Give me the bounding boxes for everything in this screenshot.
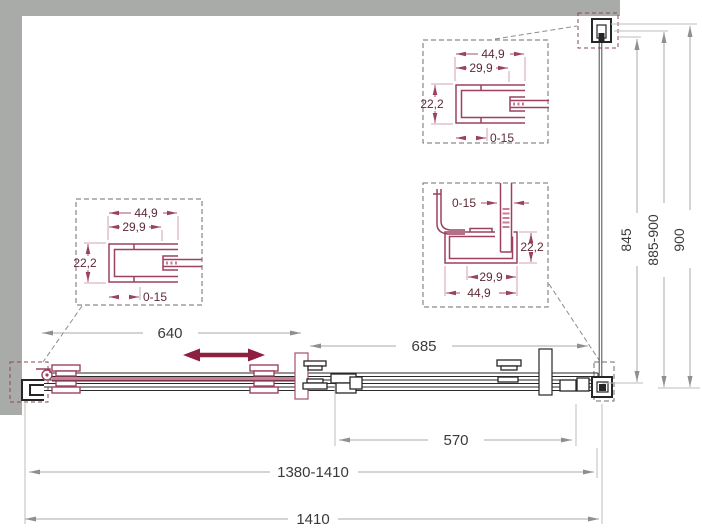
detail-left-width-outer: 44,9 <box>134 206 158 220</box>
callout-boxes <box>10 13 618 402</box>
wall-top <box>0 0 620 16</box>
detail-left: 44,9 29,9 22,2 0-15 <box>73 206 202 304</box>
wall-plan <box>0 0 620 415</box>
wall-bracket-top <box>592 19 611 42</box>
leader-left <box>43 306 82 362</box>
dim-width-total: 1410 <box>296 511 329 528</box>
leader-corner <box>549 284 599 360</box>
dimension-885-900: 885-900 <box>614 31 700 388</box>
detail-top-width-outer: 44,9 <box>481 47 505 61</box>
dim-fixed-section: 685 <box>411 338 436 355</box>
fixed-panel-post-left <box>295 353 308 399</box>
dim-door-travel: 640 <box>157 325 182 342</box>
detail-corner-adjust: 0-15 <box>452 196 476 210</box>
dimension-640: 640 <box>42 325 301 342</box>
fixed-panel-roller-right <box>497 360 521 382</box>
detail-corner-width-outer: 44,9 <box>467 286 491 300</box>
fixed-panel-post-right <box>539 349 552 395</box>
drawing-canvas: 44,9 29,9 22,2 0-15 44,9 29,9 22,2 0-15 <box>0 0 702 528</box>
detail-left-width-inner: 29,9 <box>122 220 146 234</box>
door-roller-right <box>250 365 278 393</box>
leader-top <box>495 26 577 39</box>
detail-corner-height: 22,2 <box>520 240 544 254</box>
detail-left-adjust: 0-15 <box>143 290 167 304</box>
dimension-845: 845 <box>602 37 643 383</box>
dim-depth-range: 885-900 <box>645 214 661 266</box>
door-roller-left <box>52 365 80 393</box>
wall-left <box>0 0 22 415</box>
detail-top-width-inner: 29,9 <box>469 61 493 75</box>
dim-width-range: 1380-1410 <box>277 464 349 481</box>
dim-side-section: 570 <box>443 432 468 449</box>
dimension-1380-1410: 1380-1410 <box>25 402 597 524</box>
slide-direction-arrow <box>183 349 265 362</box>
technical-drawing: 44,9 29,9 22,2 0-15 44,9 29,9 22,2 0-15 <box>0 0 702 528</box>
corner-bracket-right <box>560 377 612 397</box>
dim-depth-glass: 845 <box>618 228 634 252</box>
dimension-900: 900 <box>611 24 697 387</box>
detail-top-adjust: 0-15 <box>490 131 514 145</box>
detail-left-height: 22,2 <box>73 256 97 270</box>
track-assembly <box>22 349 612 400</box>
detail-corner-width-inner: 29,9 <box>479 270 503 284</box>
detail-corner: 0-15 22,2 29,9 44,9 <box>433 183 544 300</box>
detail-top-height: 22,2 <box>420 97 444 111</box>
detail-top: 44,9 29,9 22,2 0-15 <box>420 47 549 145</box>
return-glass-panel <box>599 42 602 382</box>
dim-depth-total: 900 <box>671 228 687 252</box>
